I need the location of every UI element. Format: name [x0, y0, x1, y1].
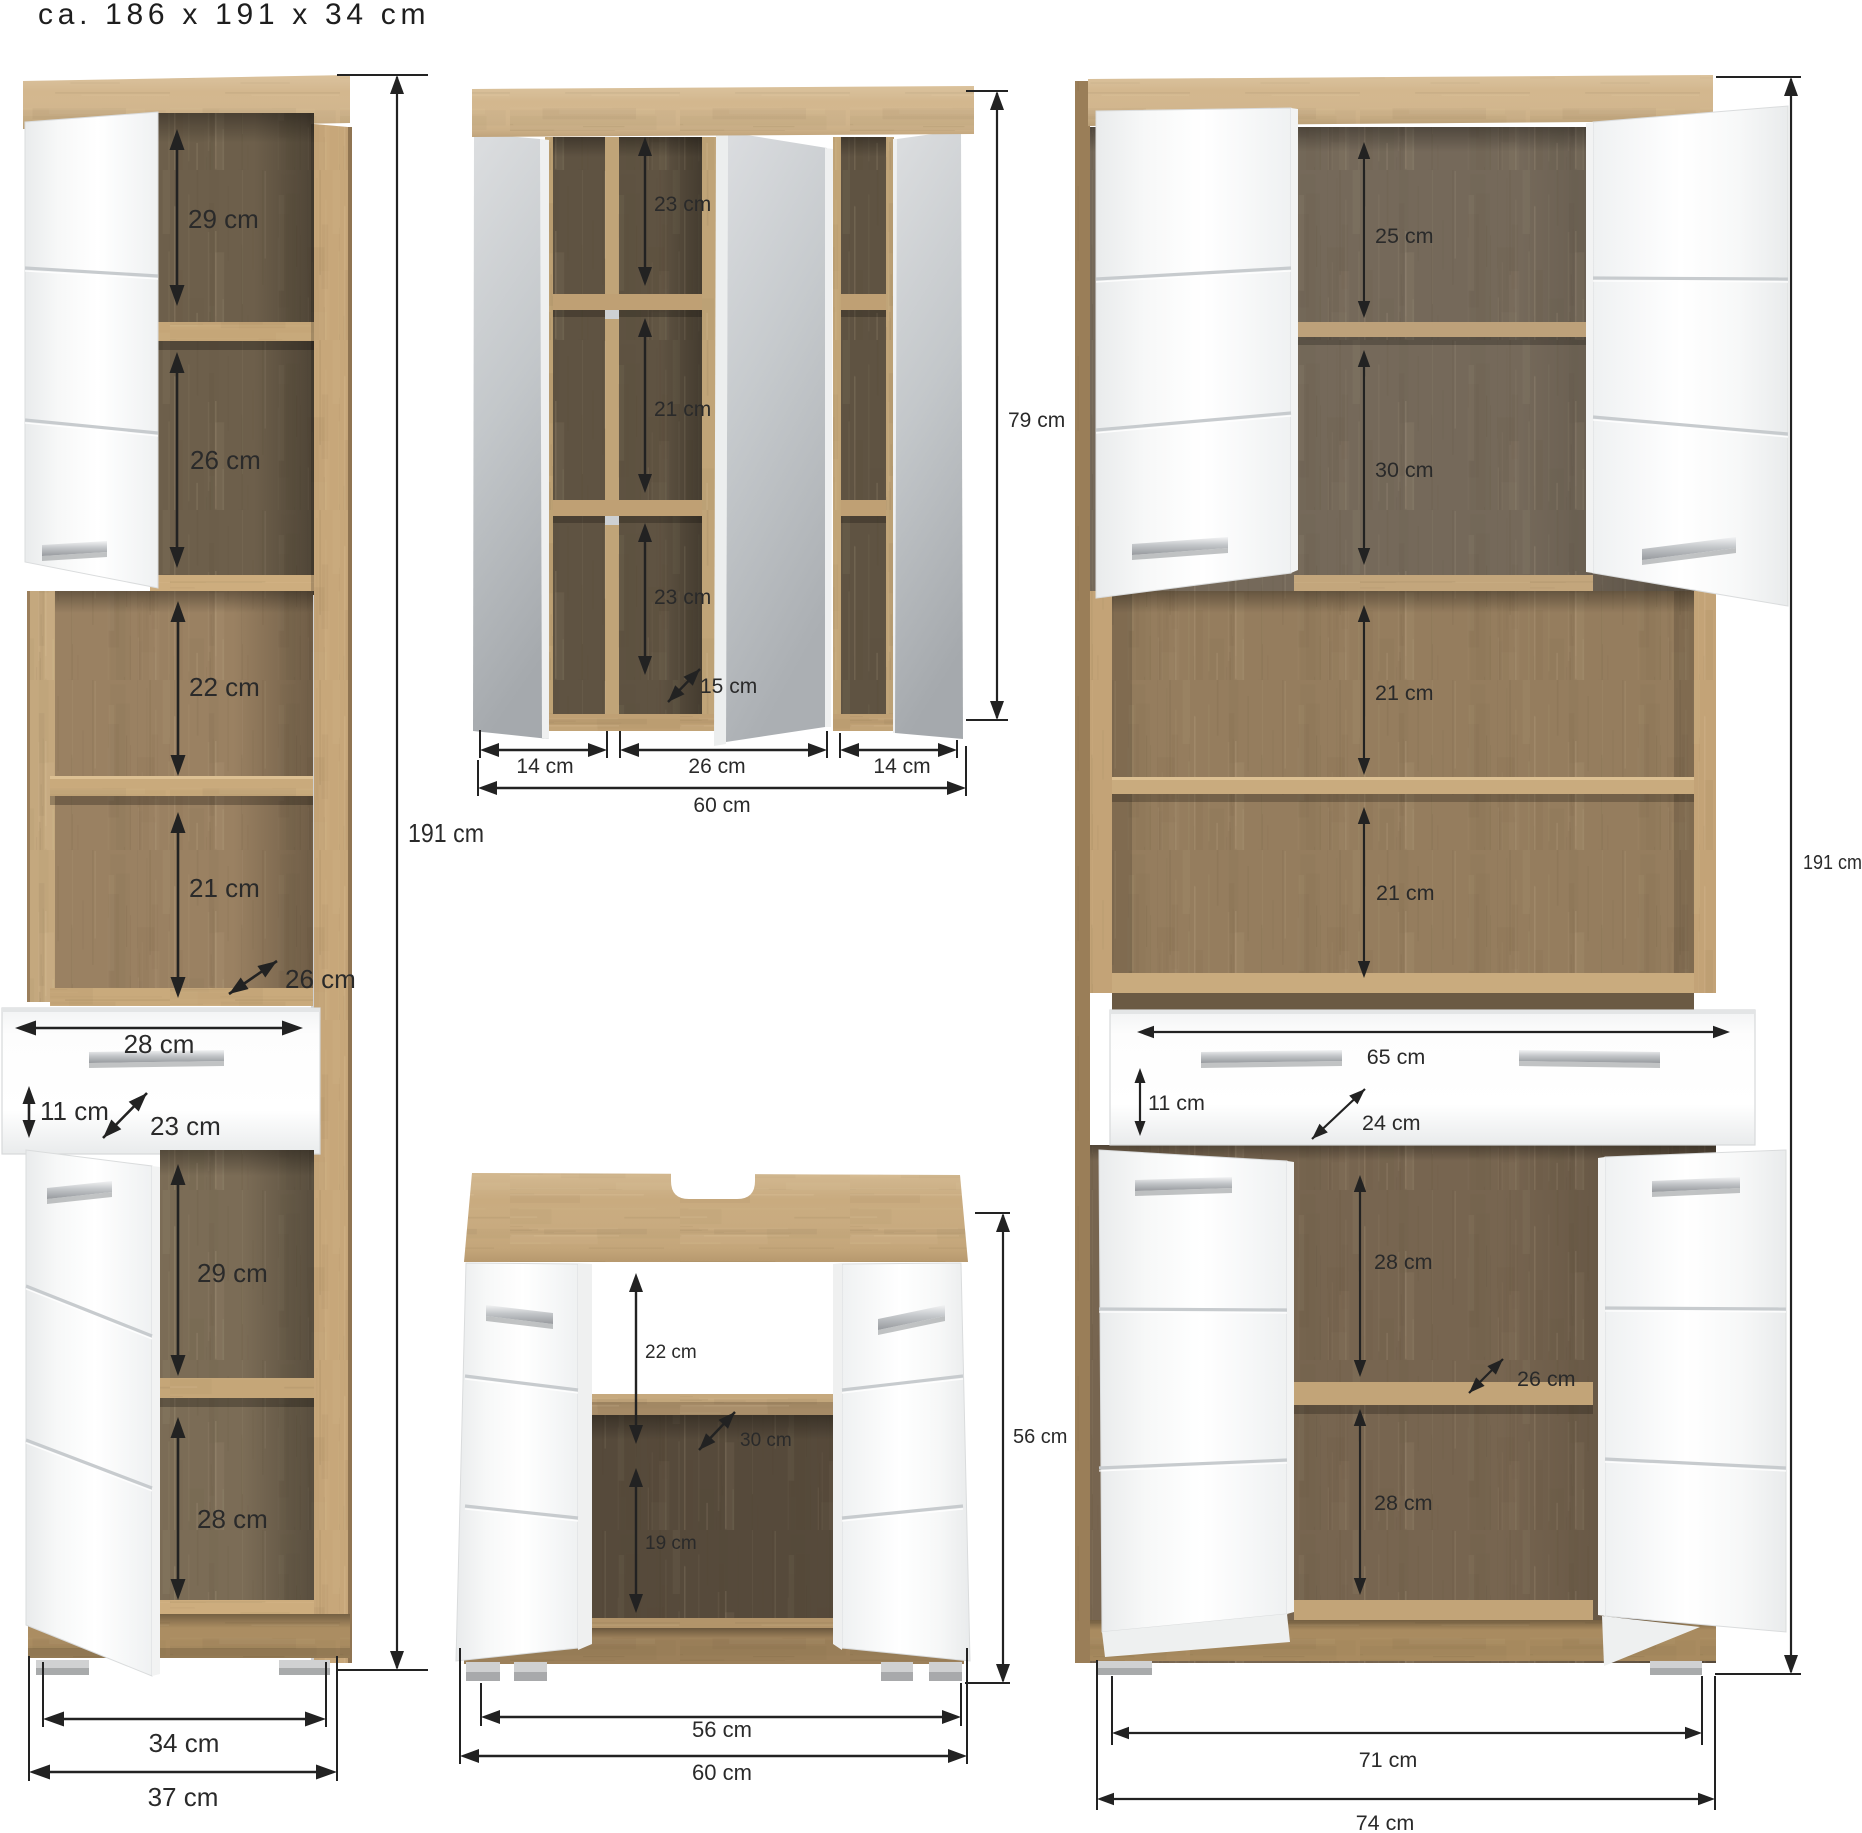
svg-text:19 cm: 19 cm — [645, 1533, 697, 1554]
svg-text:28 cm: 28 cm — [1374, 1491, 1433, 1515]
svg-text:79 cm: 79 cm — [1008, 409, 1065, 432]
svg-text:ca. 186 x 191 x 34 cm: ca. 186 x 191 x 34 cm — [38, 0, 430, 31]
svg-text:21 cm: 21 cm — [1376, 881, 1435, 905]
svg-text:71 cm: 71 cm — [1359, 1748, 1418, 1772]
svg-text:21 cm: 21 cm — [189, 873, 260, 903]
svg-text:30 cm: 30 cm — [740, 1430, 792, 1451]
svg-text:28 cm: 28 cm — [1374, 1250, 1433, 1274]
svg-text:24 cm: 24 cm — [1362, 1111, 1421, 1135]
svg-text:14 cm: 14 cm — [516, 755, 573, 778]
svg-text:22 cm: 22 cm — [189, 672, 260, 702]
svg-text:11 cm: 11 cm — [1148, 1091, 1205, 1115]
svg-text:28 cm: 28 cm — [124, 1029, 195, 1059]
svg-text:22 cm: 22 cm — [645, 1342, 697, 1363]
svg-text:29 cm: 29 cm — [188, 204, 259, 234]
svg-text:60 cm: 60 cm — [692, 1760, 752, 1785]
svg-text:15 cm: 15 cm — [700, 675, 757, 698]
svg-text:28 cm: 28 cm — [197, 1504, 268, 1534]
svg-text:11 cm: 11 cm — [40, 1096, 109, 1126]
svg-text:34 cm: 34 cm — [149, 1728, 220, 1758]
svg-text:21 cm: 21 cm — [654, 398, 711, 421]
svg-text:21 cm: 21 cm — [1375, 681, 1434, 705]
svg-text:74 cm: 74 cm — [1356, 1811, 1415, 1833]
svg-text:26 cm: 26 cm — [190, 445, 261, 475]
svg-text:26 cm: 26 cm — [285, 964, 356, 994]
svg-text:29 cm: 29 cm — [197, 1258, 268, 1288]
svg-text:23 cm: 23 cm — [150, 1111, 221, 1141]
svg-text:191 cm: 191 cm — [1803, 851, 1862, 874]
svg-text:14 cm: 14 cm — [873, 755, 930, 778]
svg-text:26 cm: 26 cm — [688, 755, 745, 778]
svg-text:25 cm: 25 cm — [1375, 224, 1434, 248]
svg-text:26 cm: 26 cm — [1517, 1367, 1576, 1391]
svg-text:191 cm: 191 cm — [408, 818, 484, 848]
svg-text:56 cm: 56 cm — [1013, 1426, 1067, 1448]
svg-text:65 cm: 65 cm — [1367, 1045, 1426, 1069]
svg-text:30 cm: 30 cm — [1375, 458, 1434, 482]
svg-text:23 cm: 23 cm — [654, 193, 711, 216]
svg-text:23 cm: 23 cm — [654, 586, 711, 609]
svg-text:60 cm: 60 cm — [693, 794, 750, 817]
svg-text:37 cm: 37 cm — [148, 1782, 219, 1812]
svg-text:56 cm: 56 cm — [692, 1717, 752, 1742]
